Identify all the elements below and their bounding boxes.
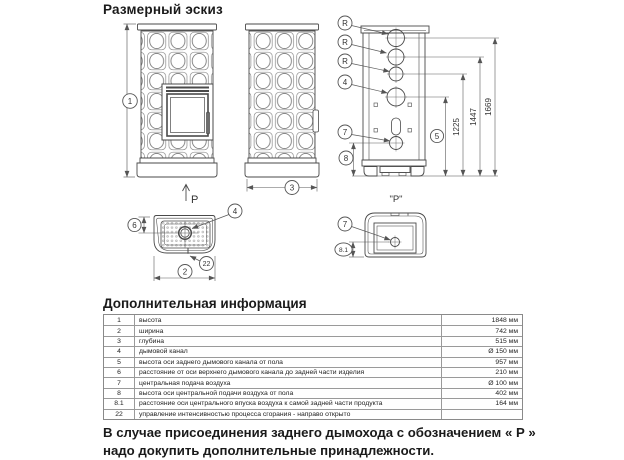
balloon-air-rear-label: 7 — [343, 128, 348, 137]
row-desc: дымовой канал — [135, 347, 442, 356]
row-desc: глубина — [135, 337, 442, 346]
dim-depth — [247, 179, 317, 195]
row-value: 164 мм — [442, 399, 522, 408]
row-desc: расстояние от оси верхнего дымового кана… — [135, 368, 442, 377]
row-value — [442, 410, 522, 419]
table-row: 8.1 расстояние оси центрального впуска в… — [104, 398, 522, 408]
table-row: 22 управление интенсивностью процесса сг… — [104, 409, 522, 419]
balloon-control-label: 22 — [203, 261, 211, 268]
top-view — [154, 216, 215, 254]
side-door-handle — [313, 110, 319, 132]
row-desc: расстояние оси центрального впуска возду… — [135, 399, 442, 408]
additional-info-section: Дополнительная информация 1 высота 1848 … — [103, 296, 523, 420]
rear-detail-view — [365, 213, 426, 257]
row-num: 8 — [104, 389, 135, 398]
row-desc: ширина — [135, 326, 442, 335]
rear-slot — [392, 118, 401, 135]
table-row: 7 центральная подача воздуха Ø 100 мм — [104, 377, 522, 387]
row-value: 402 мм — [442, 389, 522, 398]
balloon-flue-rear-label: 4 — [343, 78, 348, 87]
table-row: 1 высота 1848 мм — [104, 315, 522, 325]
note-line-2: надо докупить дополнительные принадлежно… — [103, 442, 583, 460]
row-value: Ø 100 мм — [442, 378, 522, 387]
table-title: Дополнительная информация — [103, 296, 523, 311]
balloon-flue-top-label: 4 — [233, 207, 238, 216]
side-view — [245, 24, 319, 177]
note-line-1: В случае присоединения заднего дымохода … — [103, 424, 583, 442]
info-table: 1 высота 1848 мм 2 ширина 742 мм 3 глуби… — [103, 314, 523, 420]
row-value: 210 мм — [442, 368, 522, 377]
dimensional-sketch: 1 P 6 — [0, 0, 624, 292]
rear-view — [352, 26, 498, 176]
balloon-air-detail-label: 7 — [343, 220, 348, 229]
rear-foot-left — [364, 167, 377, 177]
row-num: 6 — [104, 368, 135, 377]
rear-flue-note: В случае присоединения заднего дымохода … — [103, 424, 583, 459]
row-desc: высота оси заднего дымового канала от по… — [135, 358, 442, 367]
balloon-depth-label: 3 — [290, 183, 295, 192]
page: Размерный эскиз — [0, 0, 624, 460]
balloon-air-rear-offset-label: 8.1 — [339, 247, 348, 254]
dim-1669-label: 1669 — [484, 98, 493, 116]
row-desc: управление интенсивностью процесса сгора… — [135, 410, 442, 419]
table-row: 5 высота оси заднего дымового канала от … — [104, 357, 522, 367]
balloon-rear-flue-height-label: 5 — [435, 132, 440, 141]
rear-detail-title: "Р" — [389, 194, 402, 205]
rear-arrow-label: P — [191, 194, 198, 206]
row-num: 8.1 — [104, 399, 135, 408]
row-num: 1 — [104, 315, 135, 325]
row-desc: высота — [135, 315, 442, 325]
row-num: 22 — [104, 410, 135, 419]
table-row: 8 высота оси центральной подачи воздуха … — [104, 388, 522, 398]
row-value: 515 мм — [442, 337, 522, 346]
rear-flue-arrow — [183, 185, 190, 202]
table-row: 3 глубина 515 мм — [104, 336, 522, 346]
dim-1447-label: 1447 — [469, 108, 478, 126]
row-value: Ø 150 мм — [442, 347, 522, 356]
balloon-r3-label: R — [342, 57, 348, 66]
row-num: 3 — [104, 337, 135, 346]
front-view — [137, 24, 217, 177]
side-base — [245, 163, 319, 177]
row-num: 7 — [104, 378, 135, 387]
table-row: 2 ширина 742 мм — [104, 325, 522, 335]
row-value: 957 мм — [442, 358, 522, 367]
door-vent — [166, 87, 209, 89]
balloon-r2-label: R — [342, 38, 348, 47]
table-row: 4 дымовой канал Ø 150 мм — [104, 346, 522, 356]
balloon-width-label: 2 — [183, 267, 188, 276]
row-num: 5 — [104, 358, 135, 367]
balloon-flue-rear-offset-label: 6 — [132, 221, 137, 230]
dim-rear-flue-height — [406, 97, 449, 176]
balloon-height-label: 1 — [128, 97, 133, 106]
balloon-air-height-label: 8 — [344, 154, 349, 163]
row-value: 742 мм — [442, 326, 522, 335]
row-num: 4 — [104, 347, 135, 356]
dim-1225-label: 1225 — [452, 118, 461, 136]
balloon-r1-label: R — [342, 19, 348, 28]
rear-foot-right — [411, 167, 424, 177]
front-base — [137, 163, 217, 177]
table-row: 6 расстояние от оси верхнего дымового ка… — [104, 367, 522, 377]
row-desc: высота оси центральной подачи воздуха от… — [135, 389, 442, 398]
row-num: 2 — [104, 326, 135, 335]
row-desc: центральная подача воздуха — [135, 378, 442, 387]
row-value: 1848 мм — [442, 315, 522, 325]
